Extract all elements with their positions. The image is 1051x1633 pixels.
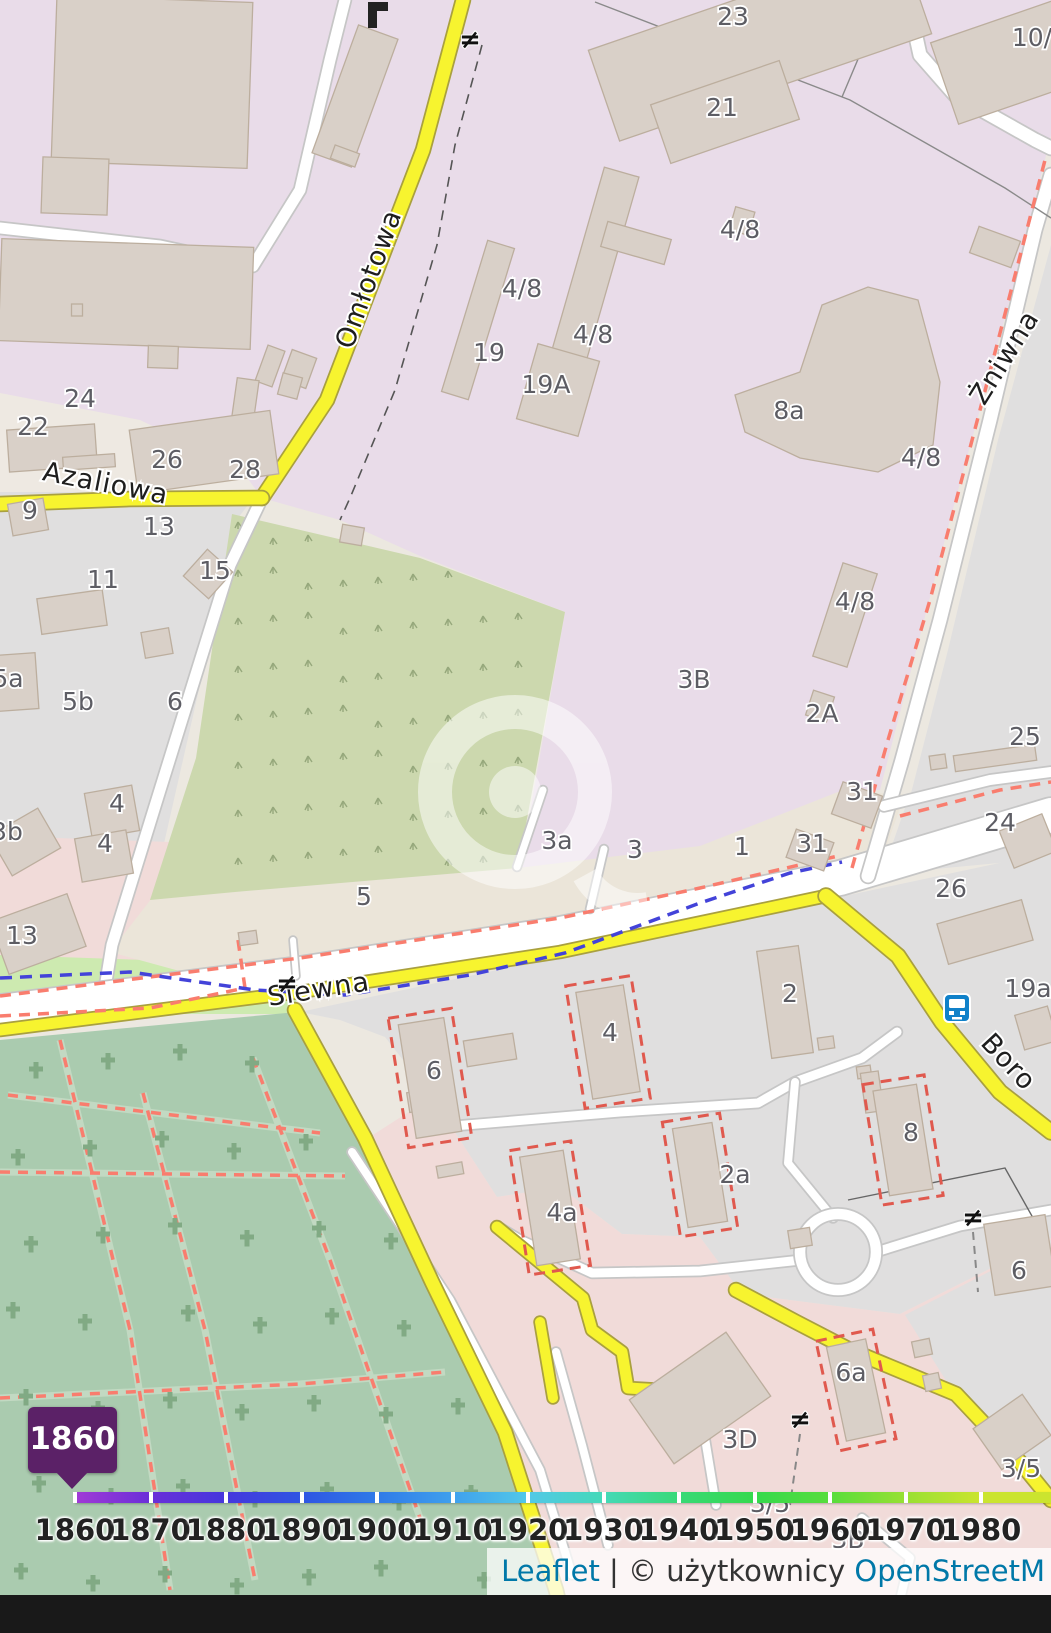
- bottom-black-bar: [0, 1595, 1051, 1633]
- house-number-label: 4/8: [573, 320, 613, 349]
- bus-stop-icon: [944, 994, 970, 1022]
- house-number-label: 2A: [805, 699, 838, 728]
- map-view[interactable]: OmłotowaAzaliowaSiewnaŻniwnaBoro 232110/…: [0, 0, 1051, 1633]
- house-number-label: 22: [17, 412, 49, 441]
- year-tick-label[interactable]: 1870: [110, 1513, 191, 1547]
- timeline-tick: [375, 1492, 379, 1503]
- building: [72, 304, 83, 316]
- building: [923, 1373, 942, 1392]
- gate-icon: ≠: [962, 1203, 984, 1233]
- house-number-label: 3B: [677, 665, 710, 694]
- timeline-tick: [300, 1492, 304, 1503]
- timeline-tick: [526, 1492, 530, 1503]
- house-number-label: 26: [151, 445, 183, 474]
- map-attribution: Leaflet | © użytkownicy OpenStreetM: [487, 1548, 1051, 1595]
- house-number-label: 2a: [719, 1160, 750, 1189]
- timeline-tick: [602, 1492, 606, 1503]
- house-number-label: 5: [356, 882, 372, 911]
- house-number-label: 24: [984, 808, 1016, 837]
- building: [148, 345, 179, 368]
- year-tick-label[interactable]: 1970: [865, 1513, 946, 1547]
- house-number-label: 3D: [722, 1425, 757, 1454]
- leaflet-link[interactable]: Leaflet: [501, 1554, 600, 1588]
- year-tick-label[interactable]: 1890: [261, 1513, 342, 1547]
- house-number-label: 26: [935, 874, 967, 903]
- house-number-label: 4/8: [901, 443, 941, 472]
- building: [912, 1338, 933, 1357]
- house-number-label: 3/5: [1001, 1454, 1041, 1483]
- timeline-tick: [828, 1492, 832, 1503]
- year-tick-label[interactable]: 1980: [941, 1513, 1022, 1547]
- gate-icon: ≠: [276, 969, 298, 999]
- year-tick-label[interactable]: 1920: [488, 1513, 569, 1547]
- year-tick-label[interactable]: 1950: [714, 1513, 795, 1547]
- building: [141, 628, 173, 658]
- house-number-label: 11: [87, 565, 119, 594]
- building: [788, 1227, 813, 1248]
- house-number-label: 8a: [773, 396, 804, 425]
- house-number-label: 6: [426, 1056, 442, 1085]
- timeline-tick: [73, 1492, 77, 1503]
- house-number-label: 4/8: [835, 587, 875, 616]
- gate-icon: ≠: [459, 25, 481, 55]
- house-number-label: 31: [846, 777, 878, 806]
- year-tick-label[interactable]: 1960: [790, 1513, 871, 1547]
- house-number-label: 3a: [541, 826, 572, 855]
- timeline-tick: [753, 1492, 757, 1503]
- house-number-label: 21: [706, 93, 738, 122]
- house-number-label: 6: [1011, 1256, 1027, 1285]
- house-number-label: 25: [1009, 722, 1041, 751]
- building: [238, 930, 258, 945]
- house-number-label: 3: [627, 835, 643, 864]
- building: [0, 239, 254, 350]
- year-tick-label[interactable]: 1940: [639, 1513, 720, 1547]
- house-number-label: 4: [109, 789, 125, 818]
- house-number-label: 13: [143, 512, 175, 541]
- house-number-label: 4a: [546, 1198, 577, 1227]
- house-number-label: 15: [199, 556, 231, 585]
- house-number-label: 9: [22, 496, 38, 525]
- building: [41, 157, 109, 215]
- house-number-label: 4: [97, 829, 113, 858]
- house-number-label: 3b: [0, 817, 23, 846]
- house-number-label: 19A: [522, 370, 571, 399]
- house-number-label: 4: [602, 1018, 618, 1047]
- timeline-tick: [149, 1492, 153, 1503]
- year-tick-label[interactable]: 1930: [563, 1513, 644, 1547]
- house-number-label: 4/8: [502, 274, 542, 303]
- house-number-label: 6: [167, 687, 183, 716]
- house-number-label: 19: [473, 338, 505, 367]
- house-number-label: 24: [64, 384, 96, 413]
- attribution-separator: |: [609, 1554, 619, 1588]
- building: [51, 0, 253, 168]
- house-number-label: 28: [229, 455, 261, 484]
- timeline-tick: [904, 1492, 908, 1503]
- map-canvas[interactable]: OmłotowaAzaliowaSiewnaŻniwnaBoro 232110/…: [0, 0, 1051, 1633]
- house-number-label: 6a: [835, 1358, 866, 1387]
- osm-link[interactable]: OpenStreetM: [854, 1554, 1045, 1588]
- house-number-label: 1: [734, 832, 750, 861]
- house-number-label: 5a: [0, 664, 24, 693]
- year-tick-label[interactable]: 1860: [35, 1513, 116, 1547]
- building: [929, 754, 947, 770]
- selected-year-badge[interactable]: 1860: [28, 1407, 117, 1473]
- year-tick-label[interactable]: 1900: [337, 1513, 418, 1547]
- house-number-label: 19a: [1004, 974, 1051, 1003]
- timeline-tick: [451, 1492, 455, 1503]
- house-number-label: 2: [782, 979, 798, 1008]
- selected-year-value: 1860: [29, 1421, 115, 1457]
- building: [340, 524, 365, 546]
- timeline-tick: [677, 1492, 681, 1503]
- house-number-label: 8: [903, 1118, 919, 1147]
- timeline-tick: [979, 1492, 983, 1503]
- house-number-label: 13: [6, 921, 38, 950]
- attribution-copyright: © użytkownicy: [628, 1554, 845, 1588]
- timeline-tick: [224, 1492, 228, 1503]
- gate-icon: ≠: [789, 1405, 811, 1435]
- house-number-label: 4/8: [720, 215, 760, 244]
- year-tick-label[interactable]: 1910: [412, 1513, 493, 1547]
- house-number-label: 23: [717, 2, 749, 31]
- year-tick-label[interactable]: 1880: [186, 1513, 267, 1547]
- house-number-label: 10/: [1012, 23, 1051, 52]
- badge-pointer: [55, 1471, 89, 1489]
- house-number-label: 31: [796, 829, 828, 858]
- building: [817, 1036, 835, 1050]
- house-number-label: 5b: [62, 687, 94, 716]
